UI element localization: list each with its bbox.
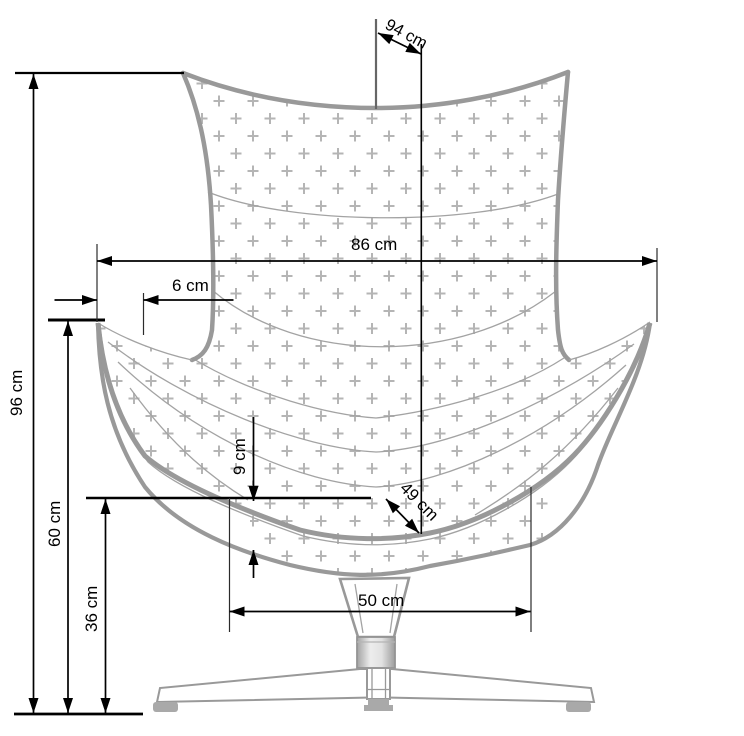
svg-text:60 cm: 60 cm [45, 501, 64, 547]
svg-text:86 cm: 86 cm [351, 235, 397, 254]
svg-text:9 cm: 9 cm [230, 438, 249, 475]
svg-text:50 cm: 50 cm [358, 591, 404, 610]
svg-text:36 cm: 36 cm [82, 586, 101, 632]
svg-text:96 cm: 96 cm [7, 370, 26, 416]
svg-text:6 cm: 6 cm [172, 276, 209, 295]
